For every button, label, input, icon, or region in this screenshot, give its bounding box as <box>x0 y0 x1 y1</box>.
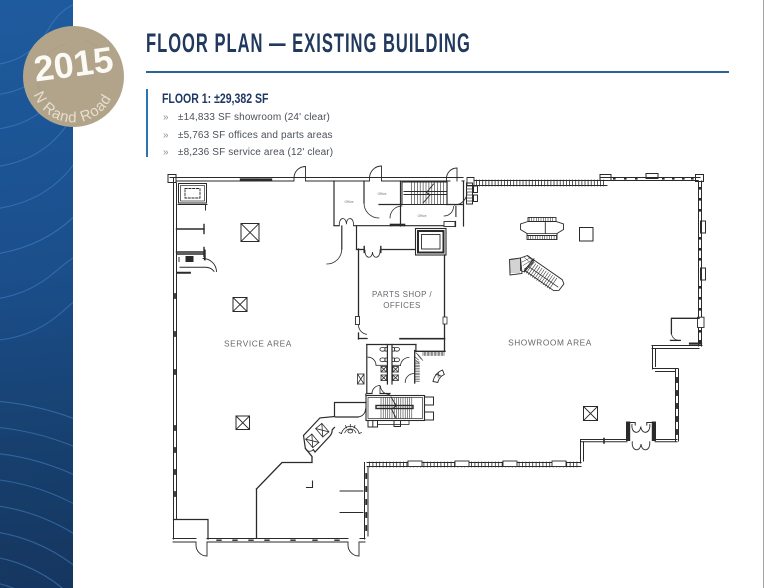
svg-text:Office: Office <box>377 192 386 196</box>
svg-text:Office: Office <box>344 200 353 204</box>
svg-text:Office: Office <box>417 214 426 218</box>
svg-text:PARTS SHOP /: PARTS SHOP / <box>372 290 432 299</box>
svg-text:SERVICE AREA: SERVICE AREA <box>224 339 292 349</box>
svg-text:OFFICES: OFFICES <box>383 301 420 310</box>
svg-text:SHOWROOM AREA: SHOWROOM AREA <box>508 338 592 348</box>
